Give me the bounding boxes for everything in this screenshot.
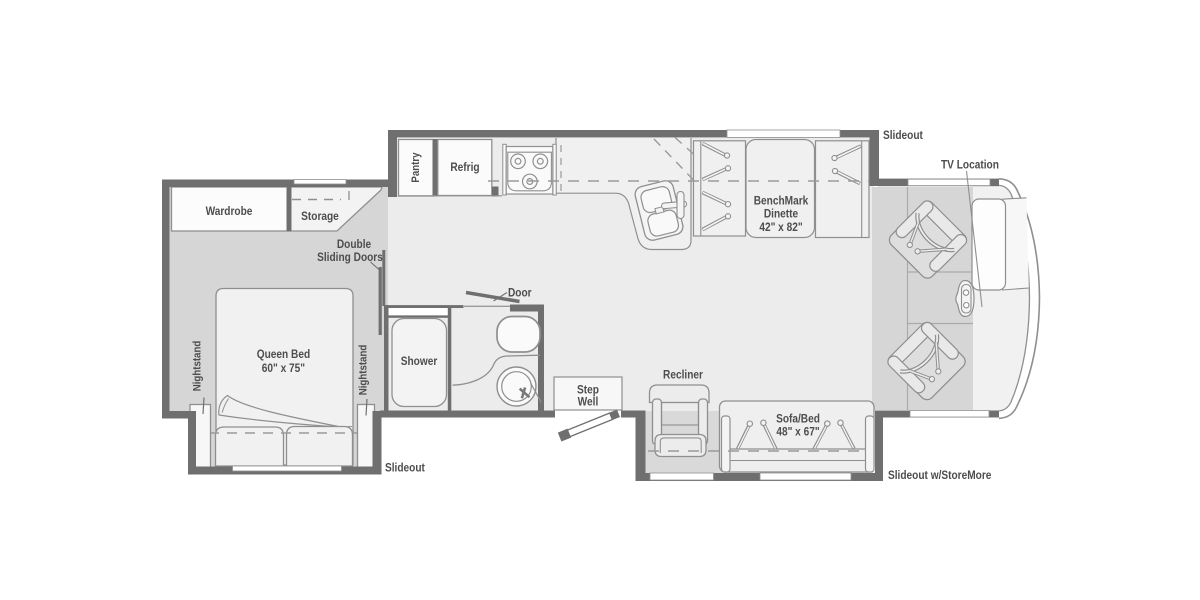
svg-text:Storage: Storage xyxy=(301,210,339,223)
svg-text:Dinette: Dinette xyxy=(764,208,798,221)
svg-text:Slideout: Slideout xyxy=(883,129,923,142)
svg-text:Refrig: Refrig xyxy=(450,161,479,174)
svg-text:Double: Double xyxy=(337,238,371,251)
svg-text:Sofa/Bed: Sofa/Bed xyxy=(776,413,820,426)
svg-text:Nightstand: Nightstand xyxy=(192,341,204,392)
svg-text:Door: Door xyxy=(508,287,532,300)
svg-text:Slideout: Slideout xyxy=(385,462,425,475)
svg-text:Well: Well xyxy=(578,396,599,409)
svg-text:Step: Step xyxy=(577,384,599,397)
svg-text:Shower: Shower xyxy=(401,355,438,368)
svg-text:Pantry: Pantry xyxy=(411,152,423,182)
svg-text:Nightstand: Nightstand xyxy=(358,345,370,396)
svg-text:TV Location: TV Location xyxy=(941,159,999,172)
svg-text:Sliding Doors: Sliding Doors xyxy=(317,251,383,264)
svg-text:Slideout w/StoreMore: Slideout w/StoreMore xyxy=(888,469,991,482)
svg-text:60" x 75": 60" x 75" xyxy=(262,362,305,375)
svg-text:BenchMark: BenchMark xyxy=(754,195,809,208)
svg-text:42" x 82": 42" x 82" xyxy=(759,221,802,234)
svg-text:Wardrobe: Wardrobe xyxy=(206,205,253,218)
svg-text:Queen Bed: Queen Bed xyxy=(257,348,310,361)
svg-text:Recliner: Recliner xyxy=(663,369,704,382)
svg-text:48" x 67": 48" x 67" xyxy=(776,426,819,439)
